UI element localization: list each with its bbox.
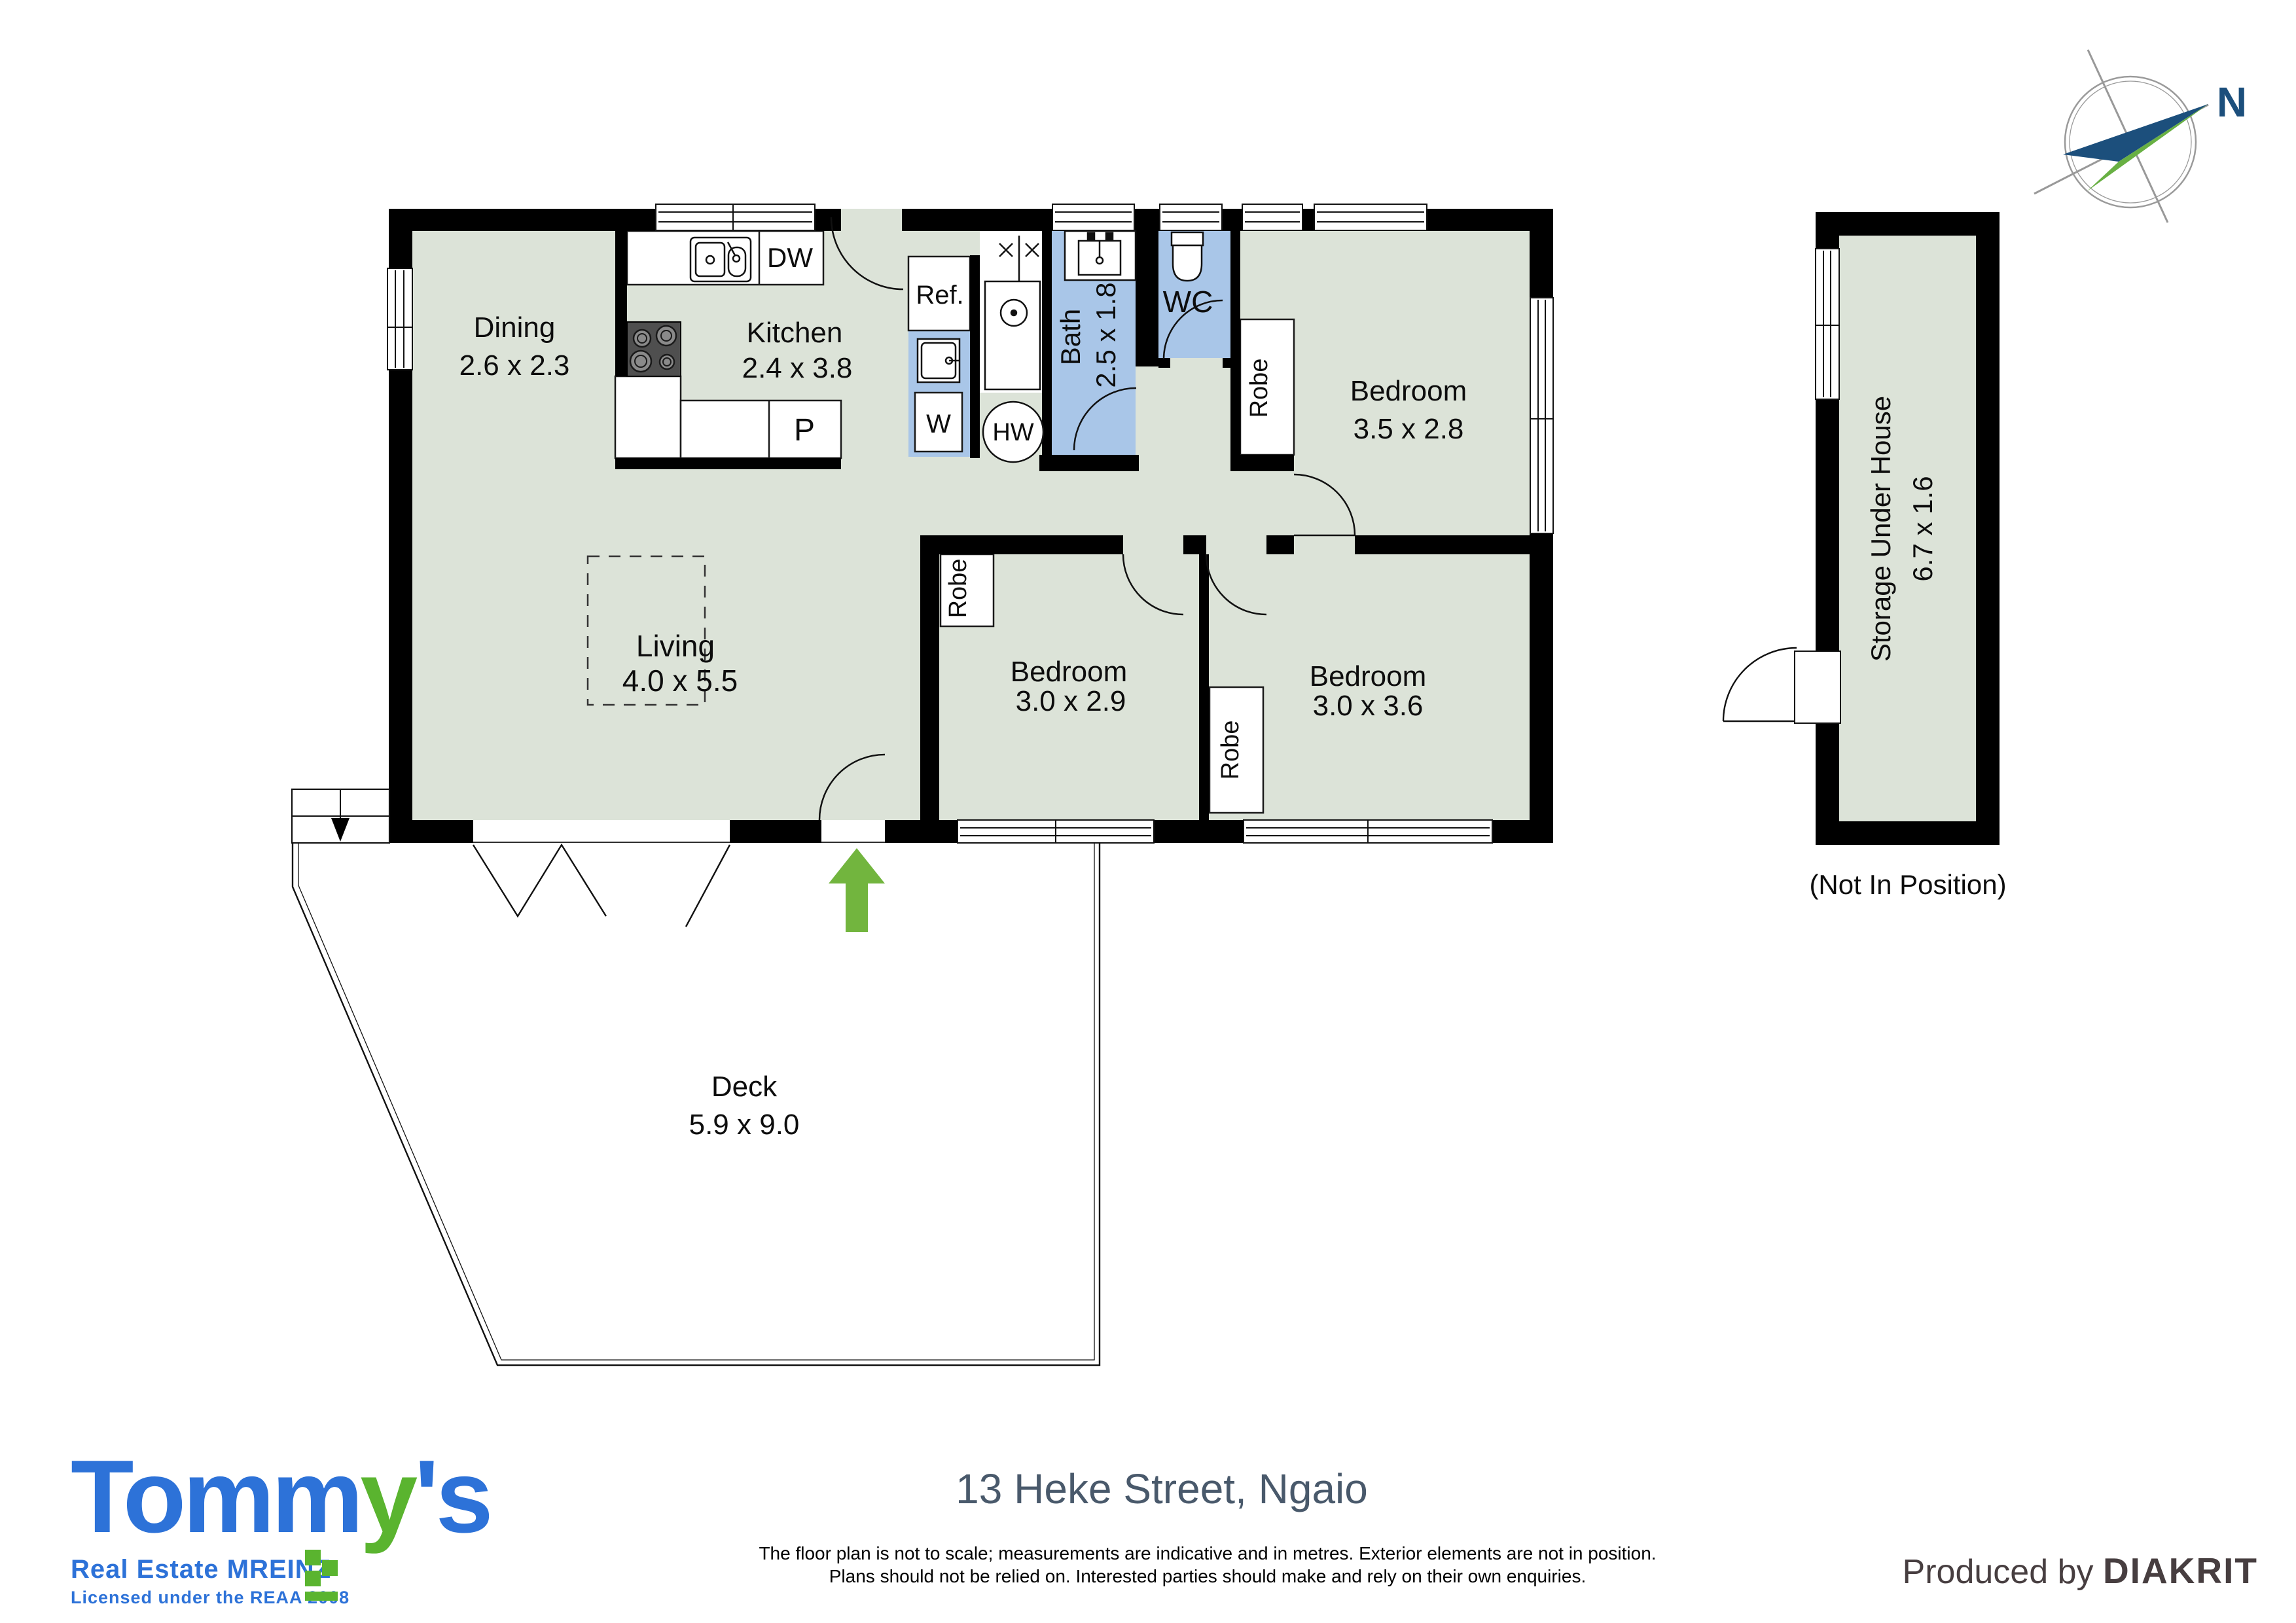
stairs-icon bbox=[292, 789, 389, 843]
logo-text-green: y bbox=[360, 1439, 414, 1554]
floorplan-canvas: N Dining 2.6 x 2.3 Kitchen 2.4 x 3.8 Bat… bbox=[0, 0, 2296, 1623]
window-storage bbox=[1816, 249, 1839, 399]
storage-door-step bbox=[1795, 651, 1840, 723]
bedroom2-dims: 3.0 x 2.9 bbox=[1016, 685, 1126, 717]
storage-label: Storage Under House bbox=[1865, 396, 1896, 662]
window-bedroom2 bbox=[958, 820, 1154, 843]
window-bedroom1-side bbox=[1530, 298, 1553, 533]
bedroom3-dims: 3.0 x 3.6 bbox=[1313, 690, 1424, 722]
deck-outline bbox=[293, 843, 1100, 1365]
kitchen-sink-icon bbox=[691, 238, 751, 281]
producer-credit: Produced by DIAKRIT bbox=[1903, 1550, 2258, 1592]
bifold-doors-icon bbox=[473, 845, 606, 916]
openings bbox=[473, 842, 885, 927]
living-label: Living bbox=[636, 629, 715, 663]
window-bedroom3 bbox=[1244, 820, 1492, 843]
bedroom3-label: Bedroom bbox=[1310, 660, 1427, 692]
pantry-label: P bbox=[794, 413, 815, 448]
logo-key-tooth bbox=[305, 1571, 321, 1586]
robe-bedroom1-label: Robe bbox=[1246, 359, 1273, 418]
window-bedroom1-b bbox=[1314, 204, 1427, 230]
storage-door-arc bbox=[1723, 648, 1797, 721]
producer-prefix: Produced by bbox=[1903, 1553, 2103, 1591]
dining-label: Dining bbox=[474, 312, 556, 344]
kitchen-label: Kitchen bbox=[747, 317, 843, 349]
page-title: 13 Heke Street, Ngaio bbox=[956, 1465, 1368, 1513]
disclaimer: The floor plan is not to scale; measurem… bbox=[759, 1542, 1656, 1588]
laundry-tub-icon bbox=[918, 339, 960, 382]
window-bath bbox=[1052, 204, 1134, 230]
agency-logo: Tommy's Real Estate MREINZ Licensed unde… bbox=[71, 1448, 437, 1608]
dining-dims: 2.6 x 2.3 bbox=[459, 349, 570, 382]
wc-label: WC bbox=[1163, 285, 1213, 319]
compass-icon: N bbox=[2034, 50, 2247, 223]
agency-license: Licensed under the REAA 2008 bbox=[71, 1588, 437, 1608]
logo-text-blue2: 's bbox=[414, 1439, 490, 1554]
living-dims: 4.0 x 5.5 bbox=[622, 664, 738, 698]
rear-door-opening bbox=[841, 209, 902, 234]
compass-north-label: N bbox=[2217, 79, 2247, 126]
disclaimer-line1: The floor plan is not to scale; measurem… bbox=[759, 1542, 1656, 1565]
bifold-door-icon bbox=[686, 845, 730, 927]
disclaimer-line2: Plans should not be relied on. Intereste… bbox=[759, 1565, 1656, 1588]
window-bedroom1-a bbox=[1242, 204, 1302, 230]
kitchen-dims: 2.4 x 3.8 bbox=[742, 352, 853, 384]
bath-label: Bath bbox=[1055, 309, 1086, 365]
window-wc bbox=[1160, 204, 1222, 230]
bedroom2-label: Bedroom bbox=[1011, 656, 1128, 688]
entry-arrow-icon bbox=[829, 848, 885, 932]
logo-key-tooth bbox=[322, 1560, 338, 1576]
window-dining bbox=[387, 268, 412, 370]
deck-dims: 5.9 x 9.0 bbox=[689, 1109, 800, 1141]
logo-key-tooth bbox=[305, 1592, 338, 1601]
washer-label: W bbox=[926, 410, 951, 438]
dishwasher-label: DW bbox=[767, 242, 813, 273]
deck-label: Deck bbox=[711, 1071, 778, 1103]
bath-dims: 2.5 x 1.8 bbox=[1090, 282, 1121, 387]
robe-bedroom3-label: Robe bbox=[1217, 721, 1244, 780]
hot-water-label: HW bbox=[992, 419, 1033, 446]
stove-icon bbox=[627, 322, 681, 376]
storage-under-house bbox=[1723, 212, 2000, 845]
logo-key-tooth bbox=[305, 1550, 321, 1565]
bath-sink-icon bbox=[1065, 231, 1136, 280]
bedroom1-label: Bedroom bbox=[1350, 375, 1467, 407]
storage-note: (Not In Position) bbox=[1809, 869, 2006, 900]
window-kitchen bbox=[656, 204, 815, 230]
agency-logo-wordmark: Tommy's bbox=[71, 1448, 437, 1546]
toilet-icon bbox=[1172, 232, 1203, 281]
agency-tagline: Real Estate MREINZ bbox=[71, 1555, 437, 1584]
fridge-label: Ref. bbox=[916, 281, 963, 310]
logo-text-blue1: Tomm bbox=[71, 1439, 360, 1554]
robe-bedroom2-label: Robe bbox=[944, 559, 972, 618]
bedroom1-dims: 3.5 x 2.8 bbox=[1354, 413, 1464, 445]
storage-dims: 6.7 x 1.6 bbox=[1907, 476, 1938, 581]
producer-name: DIAKRIT bbox=[2103, 1550, 2258, 1591]
